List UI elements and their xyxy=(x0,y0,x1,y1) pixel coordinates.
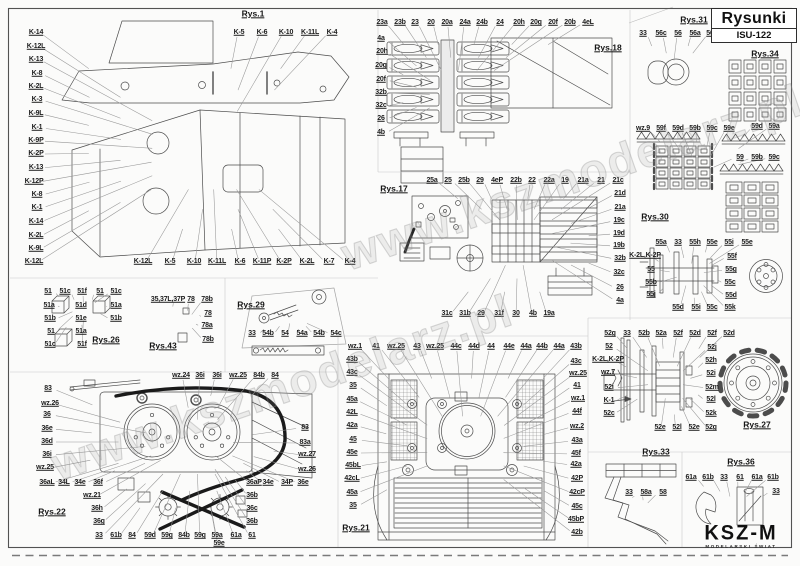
part-label: 51a xyxy=(75,328,86,336)
part-label: 61 xyxy=(248,532,255,540)
part-label: 36c xyxy=(246,505,257,513)
publisher-logo-name: KSZ-M xyxy=(688,522,794,544)
part-label: 31c xyxy=(441,310,452,318)
part-label: 20a xyxy=(441,19,452,27)
part-label: K-2L,K-2P xyxy=(629,252,661,260)
sheet-subtitle: ISU-122 xyxy=(712,29,796,42)
part-label: 52b xyxy=(638,330,649,338)
figure-title: Rys.1 xyxy=(242,9,265,18)
part-label: 43c xyxy=(346,369,357,377)
part-label: 44c xyxy=(450,343,461,351)
part-label: 30 xyxy=(512,310,519,318)
part-label: 44b xyxy=(536,343,547,351)
part-label: 55i xyxy=(724,239,733,247)
part-label: K-10 xyxy=(279,29,293,37)
part-label: 45c xyxy=(571,503,582,511)
part-label: 36aP xyxy=(246,479,262,487)
part-label: K-12P xyxy=(25,178,44,186)
part-label: wz.24 xyxy=(172,372,190,380)
sheet-title-box: Rysunki ISU-122 xyxy=(711,8,797,43)
part-label: 33 xyxy=(625,489,632,497)
part-label: 21a xyxy=(577,177,588,185)
part-label: 59e xyxy=(213,540,224,548)
part-label: 26 xyxy=(377,115,384,123)
part-label: wz.25 xyxy=(387,343,405,351)
part-label: 24a xyxy=(459,19,470,27)
part-label: 24b xyxy=(476,19,487,27)
part-label: 42L xyxy=(346,409,357,417)
part-label: 4eL xyxy=(582,19,593,27)
figure-title: Rys.26 xyxy=(92,335,119,344)
part-label: K-12L xyxy=(25,258,43,266)
part-label: 4b xyxy=(377,129,385,137)
part-label: 21c xyxy=(612,177,623,185)
part-label: 42cL xyxy=(344,475,359,483)
part-label: 83 xyxy=(301,424,308,432)
part-label: 84b xyxy=(253,372,264,380)
part-label: wz.26 xyxy=(41,400,59,408)
part-label: 84b xyxy=(178,532,189,540)
part-label: 59d xyxy=(751,123,762,131)
part-label: 83a xyxy=(299,439,310,447)
part-label: 78a xyxy=(201,322,212,330)
part-label: 35 xyxy=(349,502,356,510)
publisher-logo: KSZ-M MODELARSKI ŚWIAT xyxy=(688,523,794,549)
part-label: 51e xyxy=(75,315,86,323)
part-label: K-4 xyxy=(327,29,338,37)
part-label: 55c xyxy=(724,279,735,287)
part-label: 20f xyxy=(376,76,386,84)
part-label: 55j xyxy=(646,291,655,299)
part-label: 52l xyxy=(706,396,715,404)
part-label: K-11L xyxy=(301,29,319,37)
figure-title: Rys.33 xyxy=(642,447,669,456)
part-label: 59b xyxy=(751,154,762,162)
part-label: 52h xyxy=(705,357,716,365)
part-label: K-2L xyxy=(29,232,44,240)
part-label: 45bP xyxy=(568,516,584,524)
part-label: 59b xyxy=(689,125,700,133)
figure-title: Rys.27 xyxy=(743,420,770,429)
part-label: 61a xyxy=(751,474,762,482)
part-label: K-2L xyxy=(29,83,44,91)
part-label: 59d xyxy=(144,532,155,540)
part-label: 20b xyxy=(564,19,575,27)
part-label: 22 xyxy=(528,177,535,185)
part-label: 55i xyxy=(691,304,700,312)
part-label: 44f xyxy=(572,408,582,416)
part-label: 52i xyxy=(706,370,715,378)
part-label: 20f xyxy=(548,19,558,27)
part-label: 55h xyxy=(689,239,700,247)
part-label: wz.26 xyxy=(298,466,316,474)
part-label: K-10 xyxy=(187,258,201,266)
part-label: K-6 xyxy=(235,258,246,266)
part-label: wz.1 xyxy=(571,395,585,403)
part-label: 61a xyxy=(230,532,241,540)
part-label: 45e xyxy=(346,449,357,457)
part-label: 36i xyxy=(212,372,221,380)
part-label: 33 xyxy=(720,474,727,482)
part-label: 52g xyxy=(705,424,716,432)
part-label: 52a xyxy=(655,330,666,338)
part-label: K-8 xyxy=(32,70,43,78)
part-label: 84 xyxy=(128,532,135,540)
part-label: 33 xyxy=(639,30,646,38)
part-label: 21a xyxy=(614,204,625,212)
part-label: 52g xyxy=(604,330,615,338)
part-label: wz.25 xyxy=(569,370,587,378)
part-label: 54c xyxy=(330,330,341,338)
part-label: 52d xyxy=(689,330,700,338)
part-label: 42a xyxy=(346,422,357,430)
part-label: 83 xyxy=(44,385,51,393)
part-label: 55c xyxy=(706,304,717,312)
figure-title: Rys.30 xyxy=(641,212,668,221)
part-label: 21d xyxy=(614,190,625,198)
part-label: K-2P xyxy=(28,150,43,158)
part-label: K-2P xyxy=(276,258,291,266)
part-label: 29 xyxy=(477,310,484,318)
part-label: 44a xyxy=(520,343,531,351)
part-label: 33 xyxy=(674,239,681,247)
figure-title: Rys.18 xyxy=(594,43,621,52)
part-label: 55f xyxy=(727,253,737,261)
part-label: 55a xyxy=(655,239,666,247)
part-label: 59g xyxy=(194,532,205,540)
part-label: 34P xyxy=(281,479,293,487)
part-label: K-12L xyxy=(27,43,45,51)
part-label: 45bL xyxy=(345,462,361,470)
part-label: 55e xyxy=(741,239,752,247)
part-label: 4eP xyxy=(491,177,503,185)
part-label: 44 xyxy=(487,343,494,351)
part-label: 56 xyxy=(674,30,681,38)
part-label: 55k xyxy=(724,304,735,312)
part-label: 20h xyxy=(513,19,524,27)
part-label: 59 xyxy=(736,154,743,162)
part-label: K-11L xyxy=(208,258,226,266)
part-label: 19d xyxy=(613,230,624,238)
part-label: 25b xyxy=(458,177,469,185)
part-label: wz.27 xyxy=(298,451,316,459)
part-label: 54a xyxy=(296,330,307,338)
part-label: 51f xyxy=(77,341,87,349)
part-label: 51 xyxy=(44,288,51,296)
figure-title: Rys.34 xyxy=(751,49,778,58)
figure-title: Rys.36 xyxy=(727,457,754,466)
part-label: 43a xyxy=(571,437,582,445)
part-label: 51 xyxy=(47,328,54,336)
part-label: 52i xyxy=(604,384,613,392)
part-label: K-3 xyxy=(32,96,43,104)
part-label: 44a xyxy=(553,343,564,351)
part-label: 36d xyxy=(41,438,52,446)
part-label: 4b xyxy=(529,310,537,318)
part-label: wz.21 xyxy=(83,492,101,500)
part-label: K-9P xyxy=(28,137,43,145)
part-label: 45f xyxy=(571,450,581,458)
part-label: K-12L xyxy=(134,258,152,266)
part-label: 51d xyxy=(75,302,86,310)
part-label: 36e xyxy=(41,425,52,433)
part-label: 22a xyxy=(543,177,554,185)
part-label: 59a xyxy=(768,123,779,131)
part-label: K-2L,K-2P xyxy=(592,356,624,364)
part-label: 51a xyxy=(110,302,121,310)
part-label: 45a xyxy=(346,489,357,497)
part-label: 55d xyxy=(725,292,736,300)
part-label: 51a xyxy=(43,302,54,310)
part-label: 19a xyxy=(543,310,554,318)
part-label: 44e xyxy=(503,343,514,351)
part-label: 59c xyxy=(768,154,779,162)
part-label: 52m xyxy=(705,384,718,392)
part-label: K-13 xyxy=(29,56,43,64)
part-label: 32c xyxy=(613,269,624,277)
part-label: wz.1 xyxy=(348,343,362,351)
part-label: 55 xyxy=(647,266,654,274)
part-label: 51c xyxy=(44,341,55,349)
part-label: 54b xyxy=(313,330,324,338)
part-label: 58a xyxy=(640,489,651,497)
part-label: 56c xyxy=(655,30,666,38)
part-label: K-11P xyxy=(253,258,271,266)
part-label: 33 xyxy=(248,330,255,338)
part-label: 29 xyxy=(476,177,483,185)
part-label: wz.2 xyxy=(570,423,584,431)
figure-title: Rys.21 xyxy=(342,523,369,532)
figure-title: Rys.17 xyxy=(380,184,407,193)
part-label: 42cP xyxy=(569,489,585,497)
part-label: K-2L xyxy=(300,258,315,266)
part-label: 84 xyxy=(271,372,278,380)
part-label: K-9L xyxy=(29,110,44,118)
sheet-title: Rysunki xyxy=(712,9,796,29)
part-label: 55e xyxy=(706,239,717,247)
part-label: wz.7 xyxy=(601,369,615,377)
part-label: 33 xyxy=(95,532,102,540)
part-label: 4a xyxy=(377,35,384,43)
part-label: 52 xyxy=(605,343,612,351)
part-label: 52f xyxy=(673,330,683,338)
part-label: 34L xyxy=(58,479,69,487)
part-label: 20g xyxy=(530,19,541,27)
part-labels-layer: Rys.1K-14K-12LK-13K-8K-2LK-3K-9LK-1K-9PK… xyxy=(0,0,800,566)
part-label: 56a xyxy=(689,30,700,38)
part-label: wz.25 xyxy=(426,343,444,351)
part-label: 35,37L,37P xyxy=(151,296,185,304)
part-label: 36g xyxy=(93,518,104,526)
part-label: 51 xyxy=(96,288,103,296)
part-label: 61a xyxy=(685,474,696,482)
part-label: 78b xyxy=(202,336,213,344)
part-label: 52l xyxy=(672,424,681,432)
part-label: K-1 xyxy=(32,124,43,132)
part-label: 78 xyxy=(187,296,194,304)
part-label: 36h xyxy=(91,505,102,513)
part-label: 55g xyxy=(725,266,736,274)
part-label: 52e xyxy=(688,424,699,432)
part-label: 36i xyxy=(42,451,51,459)
part-label: 33 xyxy=(772,488,779,496)
part-label: 59g xyxy=(161,532,172,540)
part-label: 26 xyxy=(616,284,623,292)
part-label: 52d xyxy=(723,330,734,338)
part-label: 45a xyxy=(346,396,357,404)
part-label: 32b xyxy=(375,89,386,97)
part-label: wz.25 xyxy=(36,464,54,472)
part-label: K-1 xyxy=(32,204,43,212)
part-label: 52j xyxy=(707,344,716,352)
part-label: K-13 xyxy=(29,164,43,172)
part-label: 43 xyxy=(413,343,420,351)
part-label: 61 xyxy=(736,474,743,482)
part-label: 20g xyxy=(375,62,386,70)
part-label: 36aL xyxy=(39,479,54,487)
part-label: 55d xyxy=(672,304,683,312)
part-label: 23b xyxy=(394,19,405,27)
part-label: 36b xyxy=(246,518,257,526)
part-label: 51b xyxy=(44,315,55,323)
part-label: 52c xyxy=(603,410,614,418)
figure-title: Rys.22 xyxy=(38,507,65,516)
part-label: K-9L xyxy=(29,245,44,253)
part-label: 52k xyxy=(705,410,716,418)
part-label: 59d xyxy=(672,125,683,133)
part-label: K-5 xyxy=(234,29,245,37)
part-label: 59f xyxy=(656,125,666,133)
part-label: 35 xyxy=(349,382,356,390)
part-label: 31f xyxy=(494,310,504,318)
part-label: K-8 xyxy=(32,191,43,199)
part-label: 43b xyxy=(570,343,581,351)
part-label: 42a xyxy=(570,461,581,469)
part-label: 52f xyxy=(707,330,717,338)
part-label: 51f xyxy=(77,288,87,296)
part-label: 51c xyxy=(59,288,70,296)
part-label: 43b xyxy=(346,356,357,364)
part-label: 42P xyxy=(571,475,583,483)
part-label: 20h xyxy=(376,48,387,56)
part-label: 51c xyxy=(110,288,121,296)
part-label: 25a xyxy=(426,177,437,185)
part-label: 59c xyxy=(706,125,717,133)
part-label: 34e xyxy=(74,479,85,487)
part-label: 19b xyxy=(613,242,624,250)
part-label: 41 xyxy=(573,382,580,390)
part-label: 78 xyxy=(204,310,211,318)
part-label: 61b xyxy=(110,532,121,540)
part-label: 51b xyxy=(110,315,121,323)
part-label: 36f xyxy=(93,479,103,487)
part-label: 59a xyxy=(211,532,222,540)
part-label: 32b xyxy=(614,255,625,263)
part-label: 33 xyxy=(623,330,630,338)
part-label: 44d xyxy=(468,343,479,351)
part-label: 24 xyxy=(496,19,503,27)
part-label: 41 xyxy=(372,343,379,351)
part-label: 52e xyxy=(654,424,665,432)
part-label: 43c xyxy=(570,358,581,366)
part-label: 34e xyxy=(262,479,273,487)
part-label: 19c xyxy=(613,217,624,225)
part-label: 58 xyxy=(659,489,666,497)
figure-title: Rys.31 xyxy=(680,15,707,24)
part-label: 54b xyxy=(262,330,273,338)
part-label: 78b xyxy=(201,296,212,304)
part-label: 54 xyxy=(281,330,288,338)
figure-title: Rys.29 xyxy=(237,300,264,309)
part-label: 36b xyxy=(246,492,257,500)
figure-title: Rys.43 xyxy=(149,341,176,350)
part-label: 23a xyxy=(376,19,387,27)
part-label: 59e xyxy=(723,125,734,133)
part-label: 31b xyxy=(459,310,470,318)
part-label: 4a xyxy=(616,297,623,305)
part-label: 19 xyxy=(561,177,568,185)
part-label: 61b xyxy=(767,474,778,482)
part-label: K-1 xyxy=(604,397,615,405)
part-label: K-14 xyxy=(29,218,43,226)
part-label: 20 xyxy=(427,19,434,27)
part-label: 55b xyxy=(645,279,656,287)
part-label: K-5 xyxy=(165,258,176,266)
part-label: 25 xyxy=(444,177,451,185)
part-label: K-4 xyxy=(345,258,356,266)
part-label: 21 xyxy=(597,177,604,185)
part-label: 36e xyxy=(297,479,308,487)
part-label: 45 xyxy=(349,436,356,444)
part-label: 22b xyxy=(510,177,521,185)
plans-sheet: www.kszmodelarz.pl www.kszmodelarz.pl Ry… xyxy=(0,0,800,566)
part-label: K-7 xyxy=(324,258,335,266)
part-label: 61b xyxy=(702,474,713,482)
part-label: 32c xyxy=(375,102,386,110)
part-label: K-6 xyxy=(257,29,268,37)
part-label: 23 xyxy=(411,19,418,27)
part-label: 42b xyxy=(571,529,582,537)
part-label: 36i xyxy=(195,372,204,380)
part-label: K-14 xyxy=(29,29,43,37)
part-label: wz.9 xyxy=(636,125,650,133)
part-label: 36 xyxy=(43,411,50,419)
part-label: wz.25 xyxy=(229,372,247,380)
